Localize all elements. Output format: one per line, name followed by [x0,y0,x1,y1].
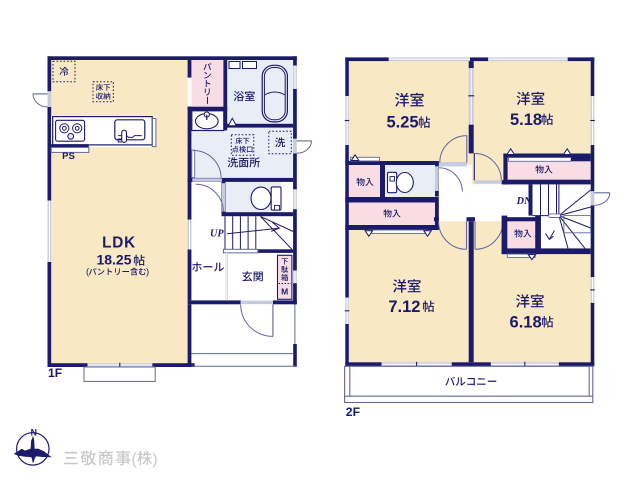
svg-text:LDK: LDK [102,235,136,252]
svg-text:(: ( [132,451,138,468]
svg-text:): ) [146,267,149,278]
svg-text:N: N [31,427,37,437]
svg-text:5.18: 5.18 [510,111,542,129]
svg-text:): ) [153,451,158,468]
svg-text:18.25: 18.25 [96,252,131,268]
svg-text:UP: UP [210,228,224,239]
svg-text:M: M [281,287,288,297]
svg-text:DN: DN [516,196,532,207]
svg-text:2F: 2F [346,405,360,419]
svg-text:5.25: 5.25 [386,114,418,132]
svg-text:1F: 1F [48,366,62,380]
svg-text:7.12: 7.12 [388,298,420,316]
svg-text:6.18: 6.18 [510,314,542,332]
svg-text:PS: PS [62,151,75,162]
